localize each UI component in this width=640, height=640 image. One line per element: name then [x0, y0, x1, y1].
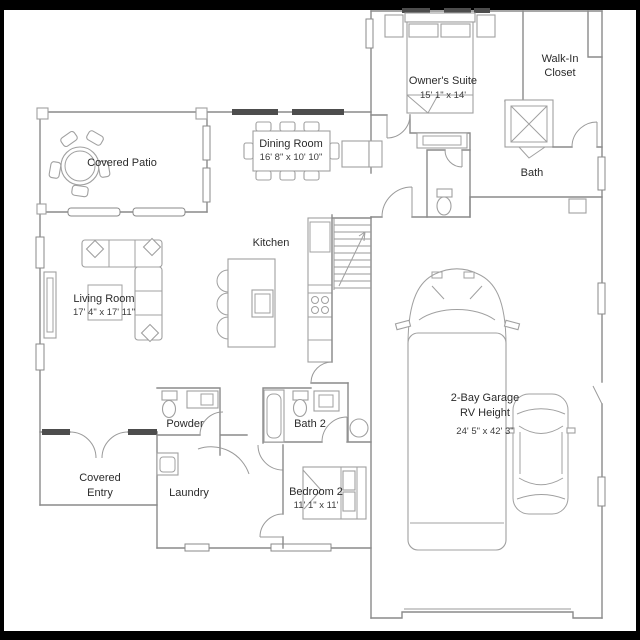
- window: [36, 344, 44, 370]
- window: [292, 109, 344, 115]
- linen-closet: [342, 141, 369, 167]
- window: [366, 19, 373, 48]
- label-dining-dims: 16' 8" x 10' 10": [260, 152, 323, 163]
- kitchen-counter: [308, 218, 332, 362]
- label-bath: Bath: [521, 167, 544, 179]
- window: [474, 8, 490, 13]
- window: [598, 157, 605, 190]
- label-kitchen: Kitchen: [253, 237, 290, 249]
- toilet-icon: [437, 189, 452, 215]
- sink-icon: [314, 391, 339, 411]
- label-entry: Entry: [87, 487, 113, 499]
- fireplace-icon: [44, 272, 56, 338]
- label-walk-in: Walk-In: [542, 53, 579, 65]
- mirror: [567, 428, 575, 433]
- water-heater-icon: [350, 419, 368, 437]
- garage-walls: [371, 187, 602, 217]
- patio-pillar: [196, 108, 207, 119]
- window: [598, 283, 605, 314]
- bath-2: [263, 383, 371, 443]
- patio-pillar: [37, 108, 48, 119]
- shower-icon: [505, 100, 553, 158]
- window: [68, 208, 120, 216]
- owners-suite: [371, 13, 495, 217]
- label-dining-room: Dining Room: [259, 138, 323, 150]
- window: [203, 126, 210, 160]
- window: [271, 544, 331, 551]
- label-garage-2: RV Height: [460, 407, 510, 419]
- window: [185, 544, 209, 551]
- window: [598, 477, 605, 506]
- laundry-room: [157, 453, 178, 475]
- window: [232, 109, 278, 115]
- stairs: [334, 141, 382, 290]
- label-bedroom2-dims: 11' 1" x 11': [294, 500, 339, 511]
- sink-icon: [187, 391, 218, 408]
- label-bedroom2: Bedroom 2: [289, 486, 343, 498]
- floorplan-image: Owner's Suite 15' 1" x 14' Walk-In Close…: [0, 0, 640, 640]
- label-powder: Powder: [166, 418, 204, 430]
- patio-pillar: [37, 204, 46, 214]
- stool-icon: [217, 270, 228, 339]
- label-laundry: Laundry: [169, 487, 209, 499]
- water-heater-icon: [569, 199, 586, 213]
- dining-room: [244, 122, 339, 180]
- floorplan-svg: Owner's Suite 15' 1" x 14' Walk-In Close…: [0, 0, 640, 640]
- mirror: [504, 320, 519, 329]
- kitchen: [217, 215, 371, 383]
- window: [36, 237, 44, 268]
- bathtub-icon: [264, 390, 284, 442]
- toilet-icon: [293, 391, 308, 417]
- living-room: [44, 239, 162, 342]
- label-living-dims: 17' 4" x 17' 11": [73, 307, 135, 318]
- label-covered-patio: Covered Patio: [87, 157, 157, 169]
- kitchen-island: [217, 259, 275, 347]
- washer-icon: [157, 453, 178, 475]
- label-owners-suite: Owner's Suite: [409, 75, 477, 87]
- window: [42, 429, 70, 435]
- label-closet: Closet: [544, 67, 575, 79]
- window: [444, 8, 471, 13]
- toilet-icon: [162, 391, 177, 418]
- label-garage-dims: 24' 5" x 42' 3": [456, 426, 513, 437]
- window: [128, 429, 157, 435]
- car-vehicle-icon: [506, 394, 575, 514]
- double-vanity: [417, 133, 467, 148]
- window: [203, 168, 210, 202]
- label-garage-1: 2-Bay Garage: [451, 392, 519, 404]
- label-covered: Covered: [79, 472, 121, 484]
- label-bath2: Bath 2: [294, 418, 326, 430]
- label-owners-suite-dims: 15' 1" x 14': [420, 90, 466, 101]
- window: [133, 208, 185, 216]
- entry-doors: [70, 432, 128, 458]
- dining-table: [244, 122, 339, 180]
- window: [402, 8, 430, 13]
- linen-closet: [369, 141, 382, 167]
- label-living-room: Living Room: [73, 293, 134, 305]
